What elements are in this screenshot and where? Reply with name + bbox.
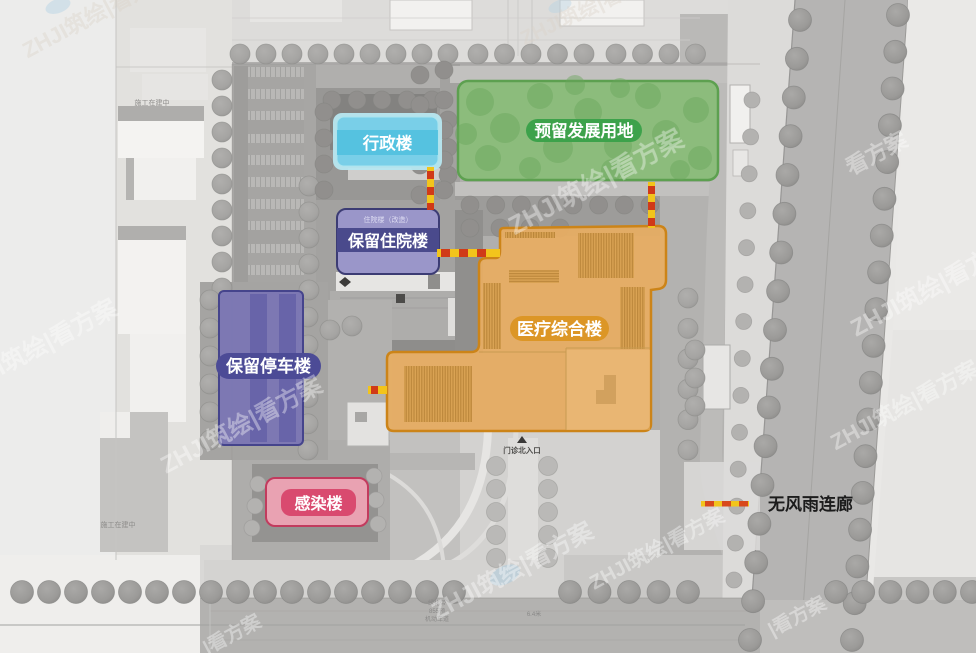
svg-text:施工在建中: 施工在建中 bbox=[135, 98, 170, 107]
svg-text:感染楼: 感染楼 bbox=[294, 494, 342, 513]
svg-text:门诊北入口: 门诊北入口 bbox=[503, 445, 541, 455]
svg-text:保留住院楼: 保留住院楼 bbox=[347, 232, 428, 251]
svg-text:医疗综合楼: 医疗综合楼 bbox=[517, 319, 602, 339]
svg-text:住院楼（改造）: 住院楼（改造） bbox=[364, 215, 413, 224]
svg-text:保留停车楼: 保留停车楼 bbox=[225, 356, 311, 376]
svg-text:6.4米: 6.4米 bbox=[527, 610, 541, 618]
svg-text:预留发展用地: 预留发展用地 bbox=[535, 121, 635, 141]
svg-text:施工在建中: 施工在建中 bbox=[101, 520, 136, 529]
svg-text:行政楼: 行政楼 bbox=[362, 133, 413, 153]
svg-text:无风雨连廊: 无风雨连廊 bbox=[767, 494, 853, 514]
